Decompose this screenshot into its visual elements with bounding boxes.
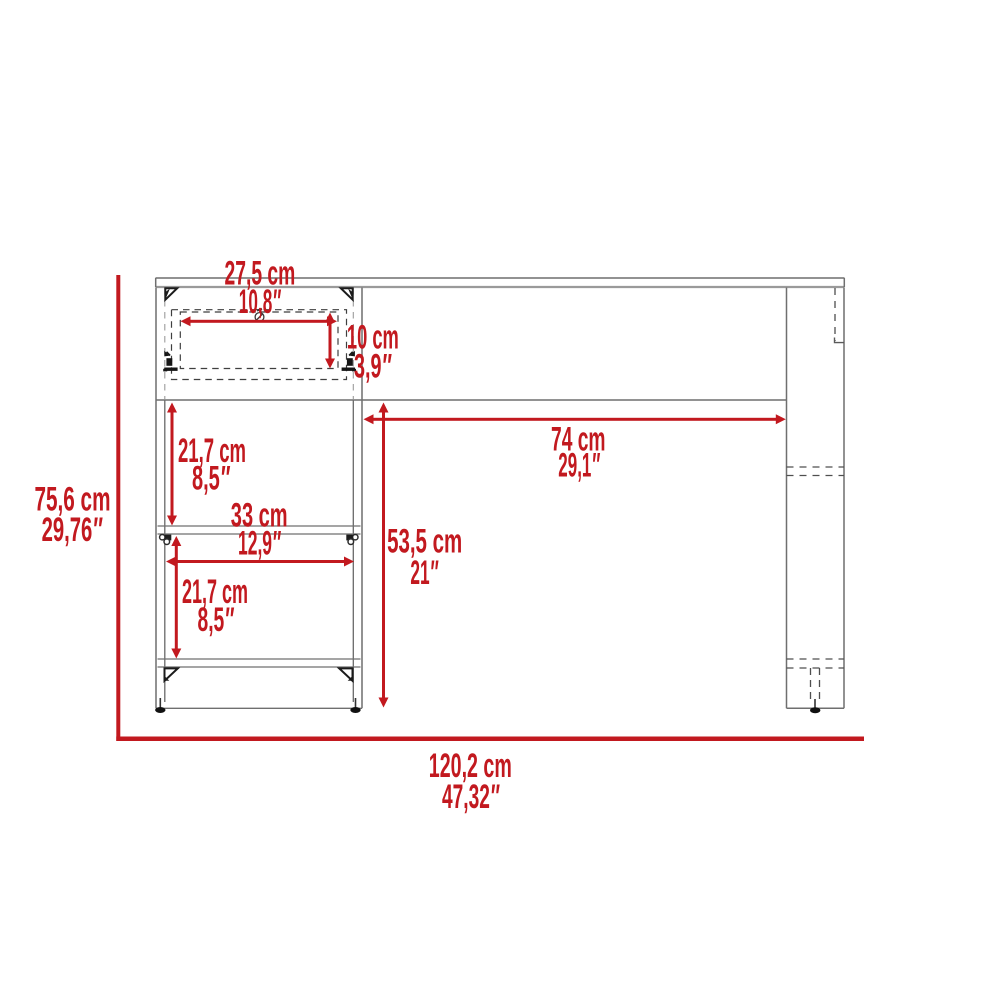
svg-text:29,1″: 29,1″ xyxy=(558,447,600,485)
svg-text:8,5″: 8,5″ xyxy=(192,459,230,497)
svg-text:8,5″: 8,5″ xyxy=(198,601,235,639)
svg-text:3,9″: 3,9″ xyxy=(354,348,392,386)
svg-text:47,32″: 47,32″ xyxy=(442,778,500,816)
svg-text:21″: 21″ xyxy=(410,554,438,592)
svg-text:29,76″: 29,76″ xyxy=(42,511,103,549)
svg-text:10,8″: 10,8″ xyxy=(239,283,281,321)
svg-text:12,9″: 12,9″ xyxy=(238,525,281,563)
